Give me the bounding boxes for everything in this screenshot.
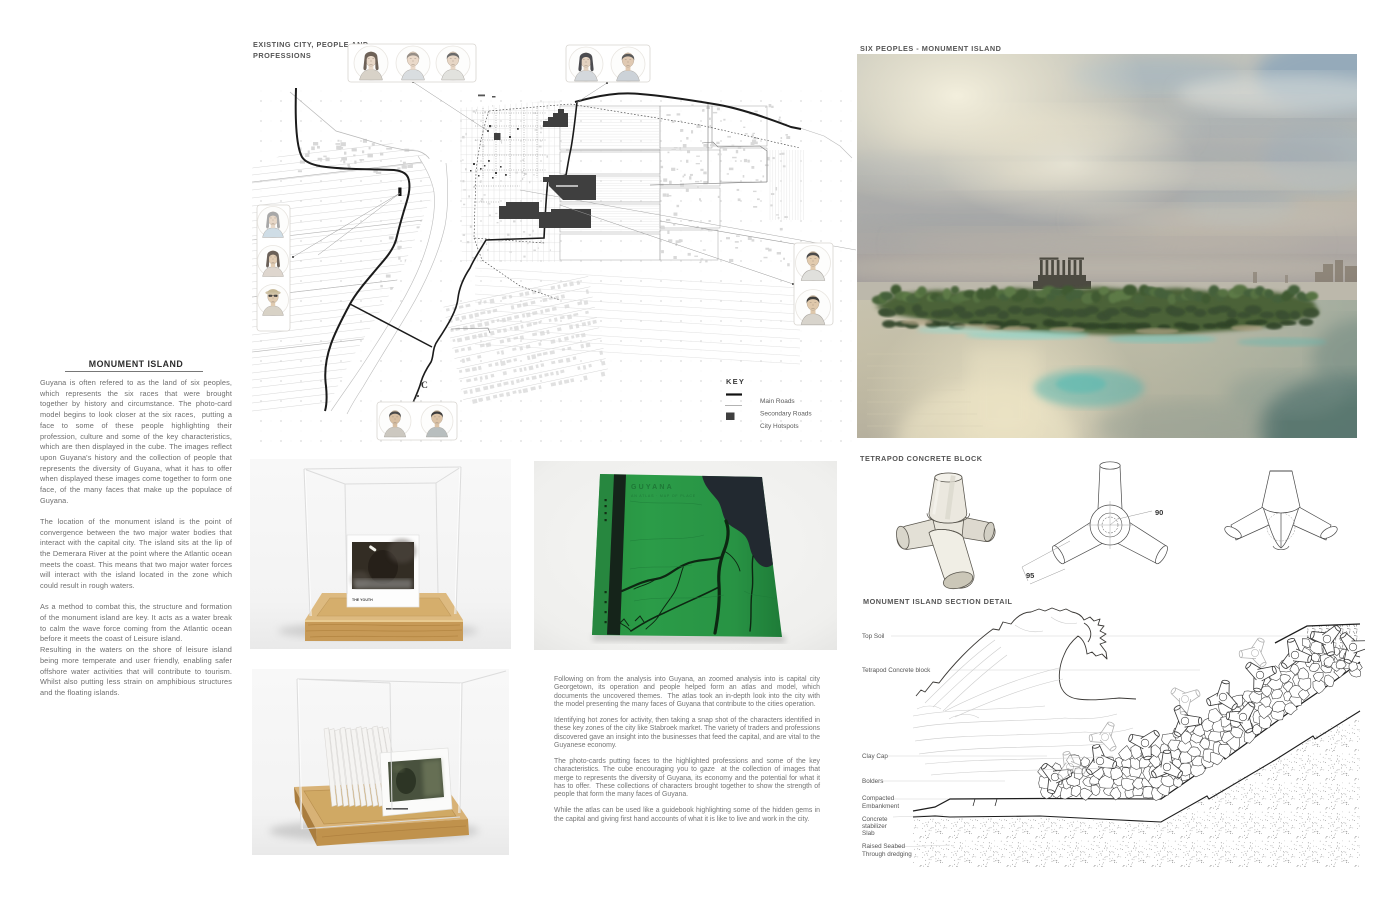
svg-text:Through dredging: Through dredging bbox=[862, 851, 912, 858]
svg-text:City Hotspots: City Hotspots bbox=[760, 423, 799, 430]
svg-text:Slab: Slab bbox=[862, 830, 875, 837]
svg-text:AN ATLAS · MAP OF PLACE: AN ATLAS · MAP OF PLACE bbox=[631, 494, 696, 498]
svg-text:Embankment: Embankment bbox=[862, 803, 899, 810]
svg-text:Raised Seabed: Raised Seabed bbox=[862, 843, 906, 850]
svg-text:90: 90 bbox=[1155, 508, 1163, 517]
svg-text:Compacted: Compacted bbox=[862, 795, 895, 802]
svg-text:Concrete: Concrete bbox=[862, 816, 888, 823]
svg-text:KEY: KEY bbox=[726, 377, 745, 386]
svg-text:Main Roads: Main Roads bbox=[760, 398, 795, 405]
svg-text:Secondary Roads: Secondary Roads bbox=[760, 411, 812, 418]
svg-text:95: 95 bbox=[1026, 571, 1034, 580]
svg-text:Top Soil: Top Soil bbox=[862, 633, 884, 640]
svg-text:Clay Cap: Clay Cap bbox=[862, 753, 888, 760]
svg-text:GUYANA: GUYANA bbox=[631, 484, 674, 491]
svg-text:THE YOUTH: THE YOUTH bbox=[352, 598, 373, 602]
svg-text:Bolders: Bolders bbox=[862, 778, 883, 785]
svg-text:Tetrapod Concrete block: Tetrapod Concrete block bbox=[862, 667, 931, 674]
svg-text:stabilizer: stabilizer bbox=[862, 823, 887, 830]
